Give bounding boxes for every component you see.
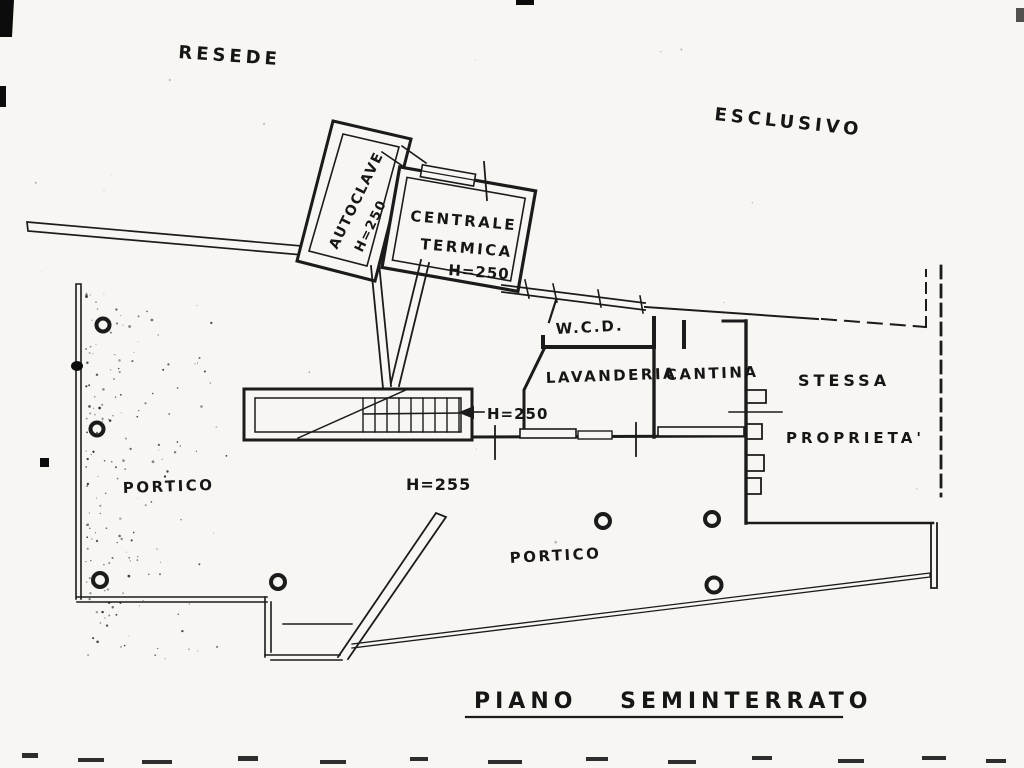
staircase [244,389,484,440]
room-label-lavanderia: LAVANDERIA [546,364,678,387]
portico-outline [71,284,937,660]
scanned-floor-plan-page: RESEDE ESCLUSIVO AUTOCLAVE H=250 CENTRAL… [0,0,1024,768]
right-wall-notches [729,390,782,494]
note-stessa: STESSA [798,371,890,390]
dimension-stair-height: H=250 [487,405,548,423]
page-title: PIANO SEMINTERRATO [474,689,872,714]
room-label-cantina: CANTINA [666,363,759,384]
scan-stipple-texture [35,48,918,659]
labels: RESEDE ESCLUSIVO AUTOCLAVE H=250 CENTRAL… [123,42,925,567]
floor-plan-canvas: RESEDE ESCLUSIVO AUTOCLAVE H=250 CENTRAL… [0,0,1024,768]
note-proprieta: PROPRIETA' [786,429,925,447]
window-band [502,280,645,313]
room-label-portico-left: PORTICO [123,476,215,497]
room-label-portico-bottom: PORTICO [509,544,602,567]
dimension-hall-height: H=255 [406,475,471,494]
label-resede: RESEDE [178,42,282,70]
room-label-wcd: W.C.D. [555,316,624,338]
label-esclusivo: ESCLUSIVO [713,104,863,140]
drawing-title: PIANO SEMINTERRATO [466,689,872,717]
